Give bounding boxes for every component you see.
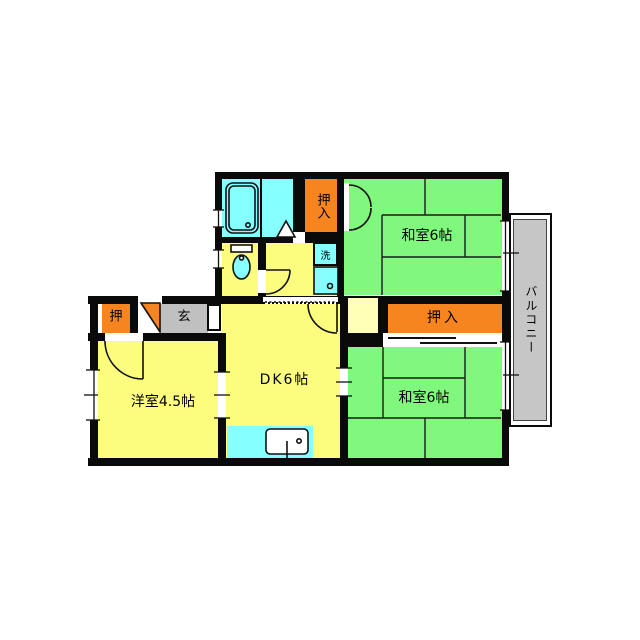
door-dk bbox=[308, 304, 337, 333]
label-western-room: 洋室4.5帖 bbox=[131, 394, 195, 410]
label-japanese-room-top: 和室6帖 bbox=[402, 228, 453, 244]
door-toilet bbox=[266, 270, 290, 294]
bath-door-icon bbox=[277, 221, 295, 237]
kitchen-sink-icon bbox=[266, 429, 308, 459]
label-closet-entry: 押 bbox=[109, 311, 122, 326]
label-japanese-room-bottom: 和室6帖 bbox=[399, 390, 450, 406]
washbasin-icon bbox=[314, 267, 338, 294]
entrance-door bbox=[141, 303, 160, 332]
toilet-icon bbox=[231, 245, 252, 279]
floorplan-linework bbox=[0, 0, 640, 640]
floorplan-canvas: 洗 bbox=[0, 0, 640, 640]
label-closet-bottom: 押入 bbox=[427, 310, 461, 326]
label-dk: DK6帖 bbox=[260, 372, 311, 388]
label-balcony: バルコニー bbox=[523, 285, 537, 355]
label-genkan: 玄 bbox=[177, 311, 190, 326]
sliding-door-lines bbox=[388, 338, 497, 343]
door-closet-double bbox=[349, 185, 371, 230]
label-closet-top: 押入 bbox=[314, 193, 329, 219]
tatami-lines bbox=[348, 179, 501, 458]
door-western-room bbox=[105, 341, 143, 379]
bathtub-icon bbox=[226, 183, 258, 233]
